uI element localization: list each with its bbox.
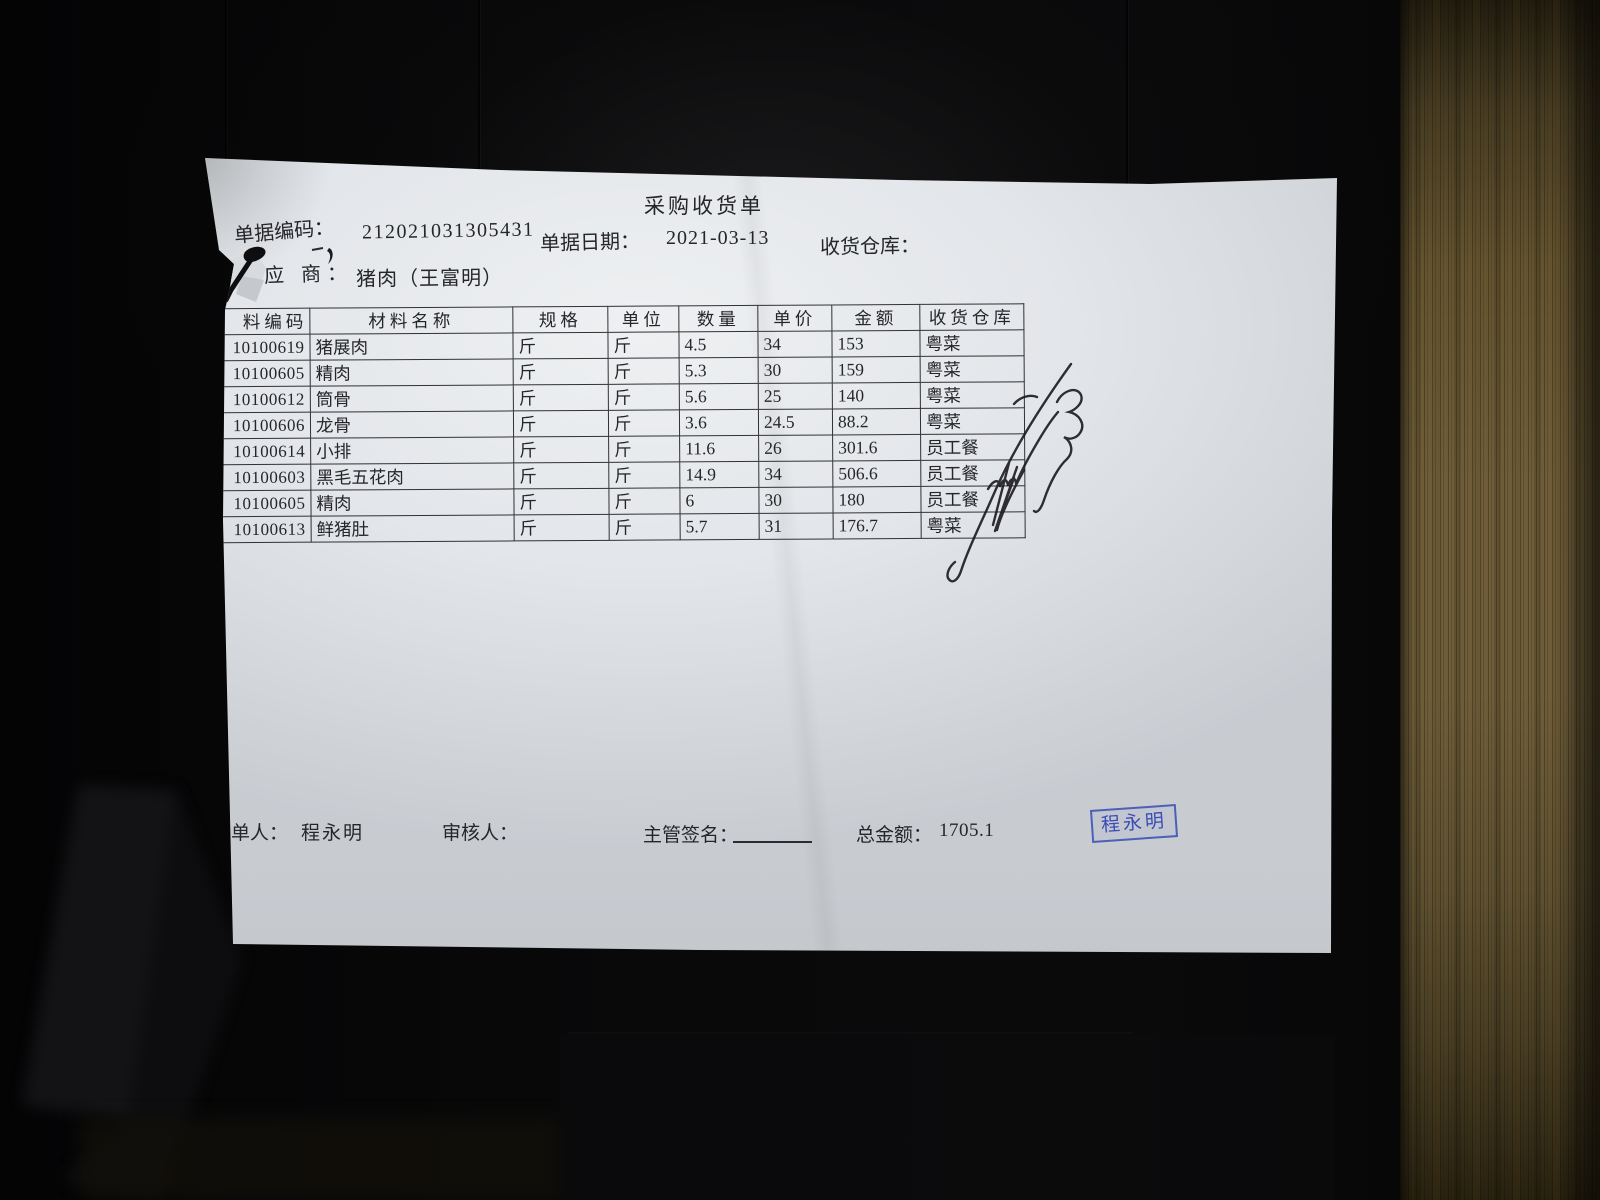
reviewer-label: 审核人： [442, 818, 518, 845]
preparer-name: 程永明 [301, 818, 364, 845]
name-stamp: 程永明 [1090, 804, 1178, 843]
background-seam [478, 0, 480, 172]
total-label: 总金额： [856, 820, 932, 847]
background-seam [225, 0, 227, 160]
signature-blank-line [733, 822, 812, 843]
preparer-label: 单人： [231, 818, 288, 845]
total-value: 1705.1 [939, 820, 994, 842]
ink-scribble [226, 247, 333, 300]
panel-edge-highlight [568, 1032, 1133, 1034]
wood-panel [1400, 0, 1600, 1200]
dark-panel [560, 1035, 1335, 1200]
floor-hint [80, 1118, 560, 1200]
manager-sign-label: 主管签名： [643, 820, 738, 847]
background-seam [1126, 0, 1128, 186]
photo-scene: 采购收货单 单据编码： 212021031305431 单据日期： 2021-0… [0, 0, 1600, 1200]
